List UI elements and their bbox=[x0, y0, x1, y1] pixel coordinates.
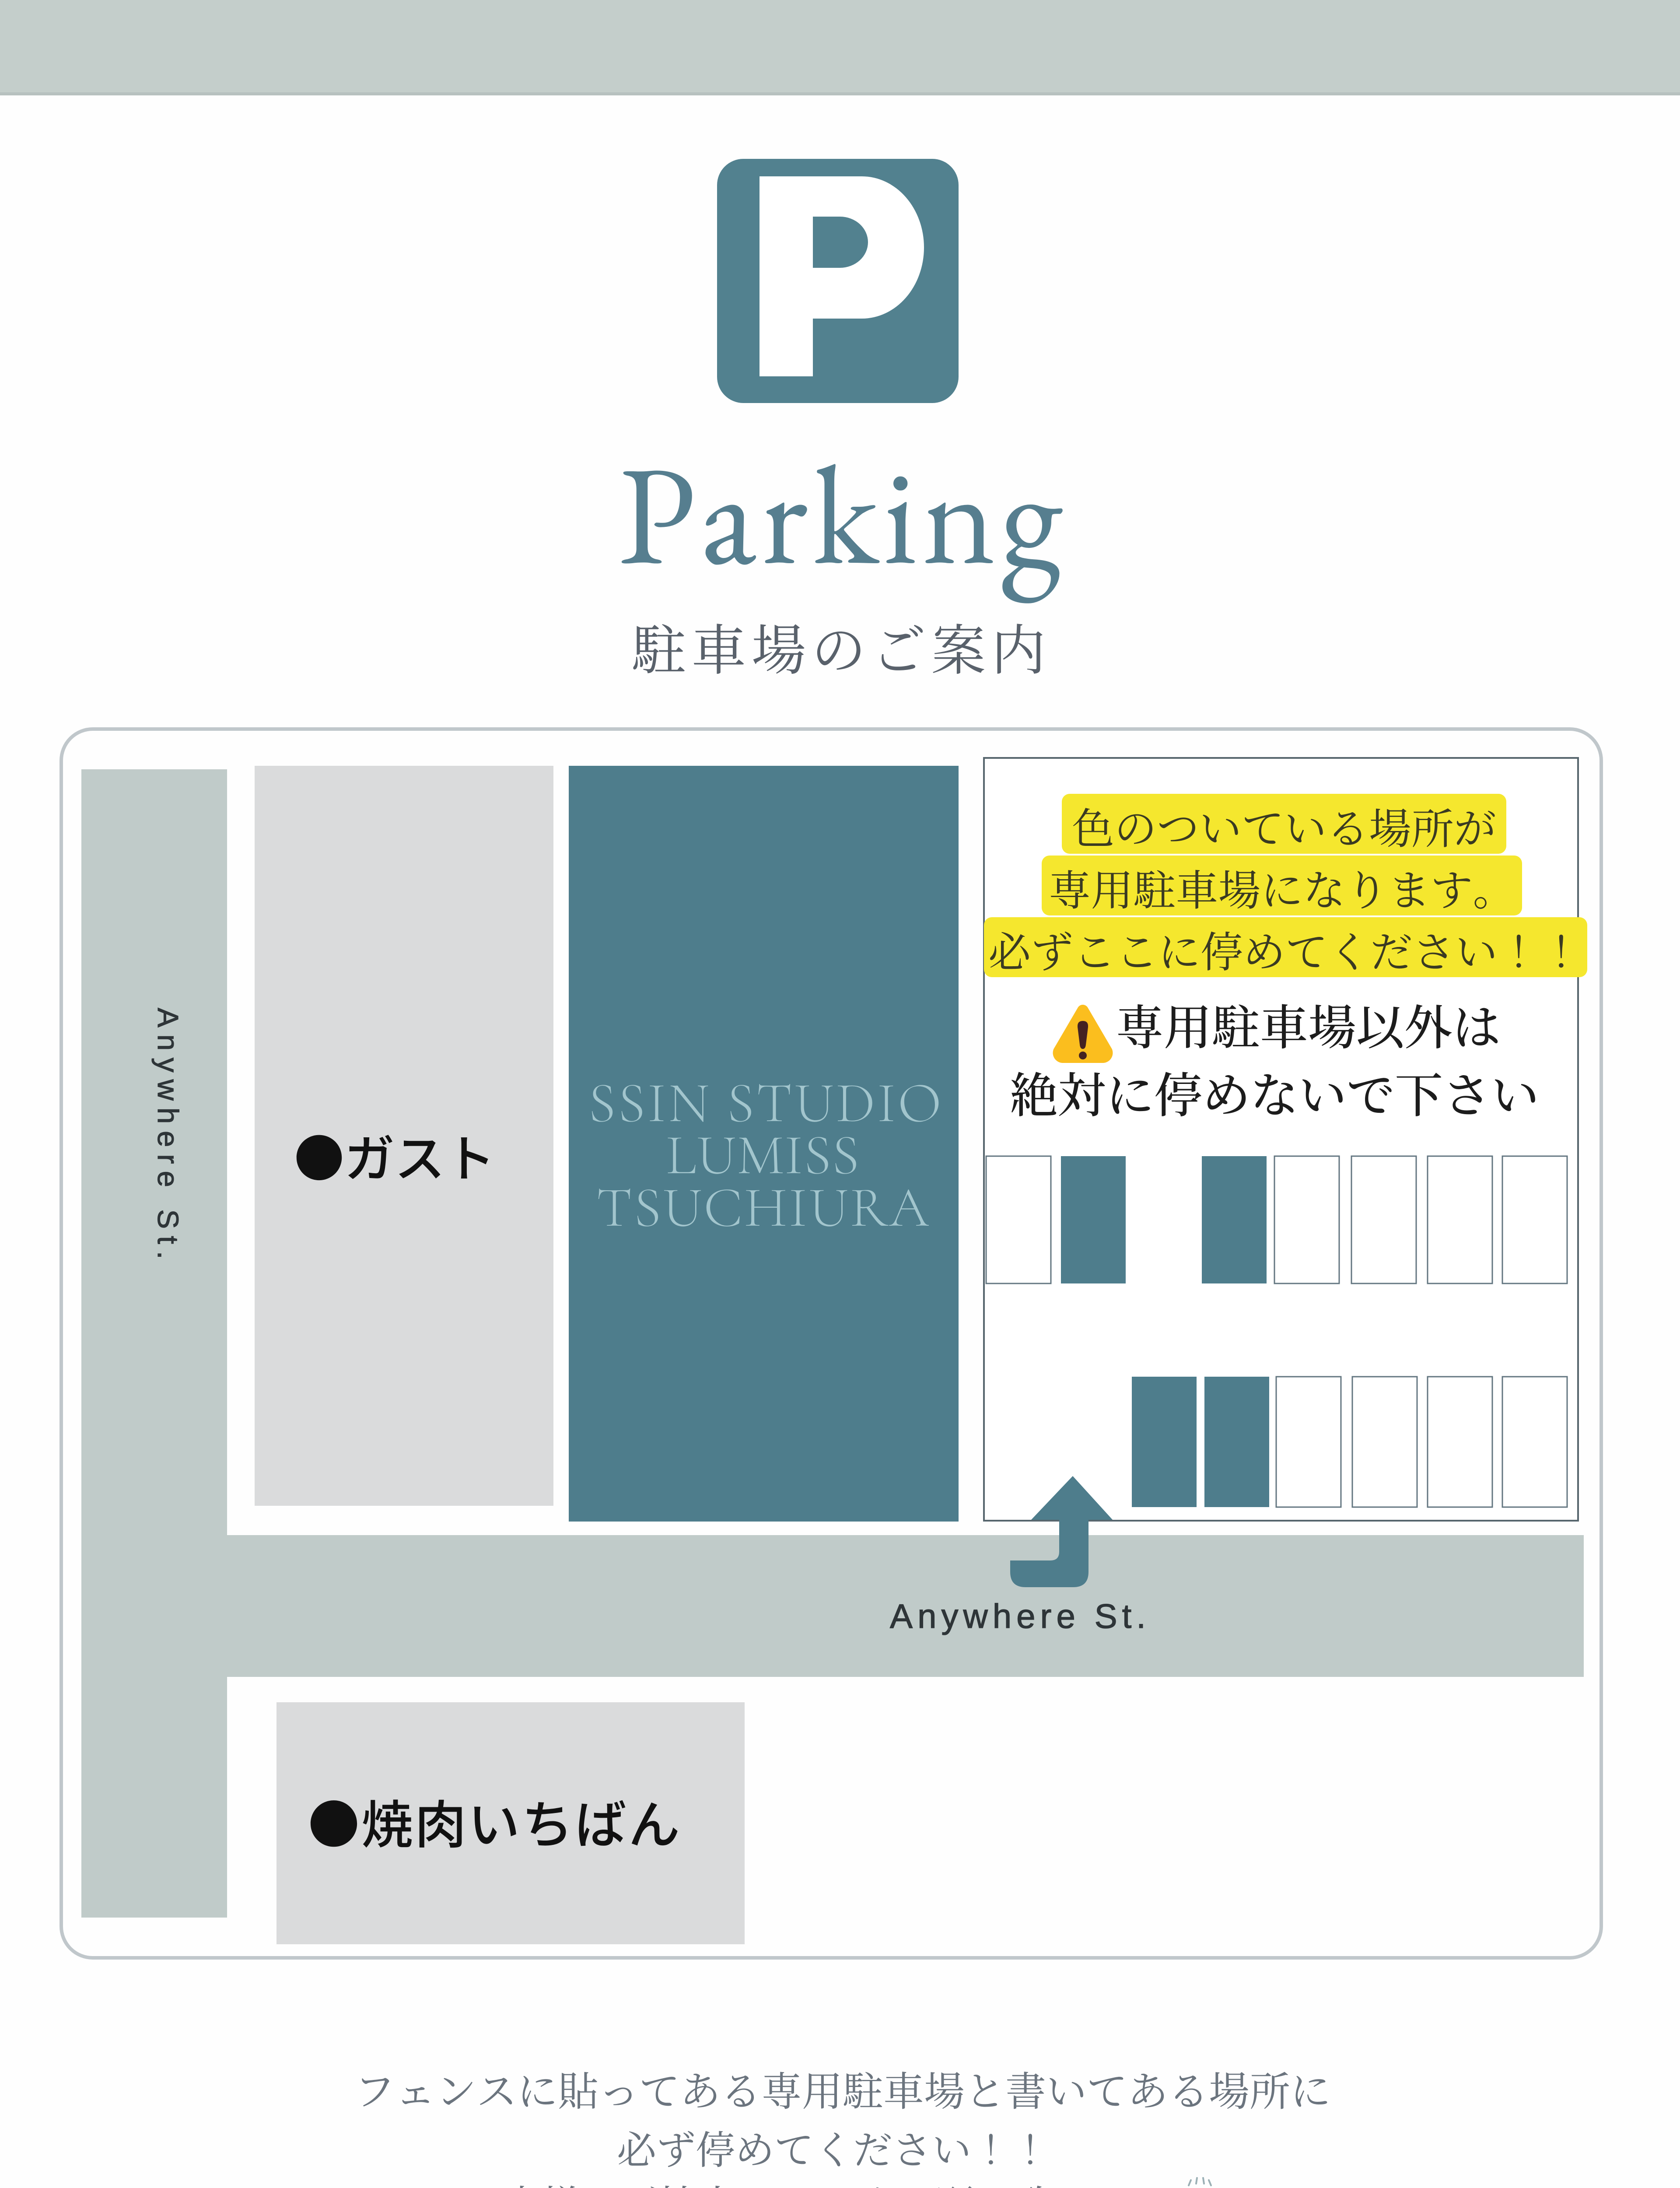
svg-text:Anywhere St.: Anywhere St. bbox=[151, 1008, 184, 1266]
svg-text:Anywhere St.: Anywhere St. bbox=[890, 1597, 1151, 1635]
